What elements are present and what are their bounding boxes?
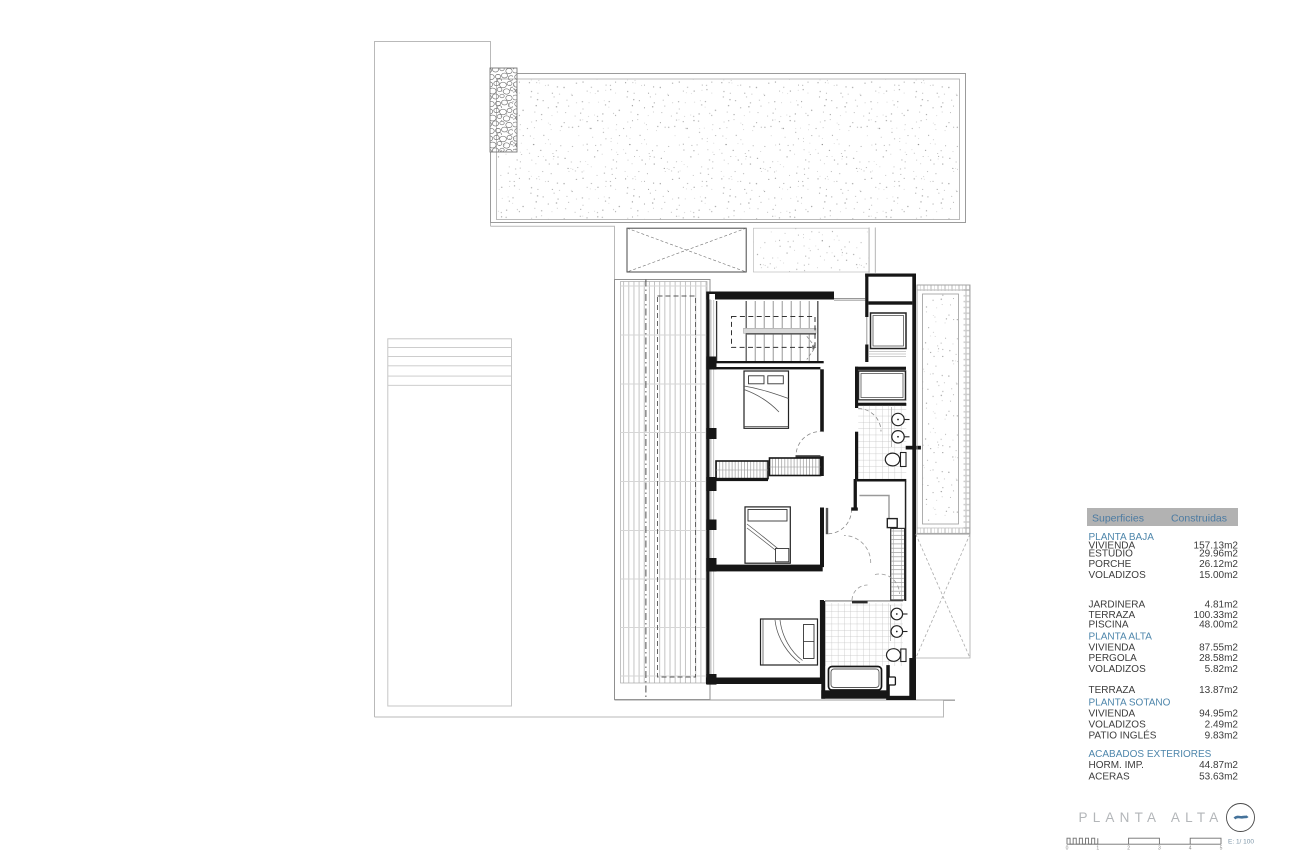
svg-text:26.12m2: 26.12m2 bbox=[1199, 559, 1238, 570]
svg-text:ACERAS: ACERAS bbox=[1089, 772, 1130, 783]
svg-text:87.55m2: 87.55m2 bbox=[1199, 643, 1238, 654]
svg-text:0: 0 bbox=[1066, 846, 1069, 850]
svg-text:VIVIENDA: VIVIENDA bbox=[1089, 709, 1136, 720]
svg-text:44.87m2: 44.87m2 bbox=[1199, 760, 1238, 771]
svg-text:PATIO INGLÉS: PATIO INGLÉS bbox=[1089, 729, 1157, 742]
svg-text:5: 5 bbox=[1220, 846, 1223, 850]
svg-text:ACABADOS EXTERIORES: ACABADOS EXTERIORES bbox=[1089, 749, 1212, 760]
svg-text:Superficies: Superficies bbox=[1092, 513, 1144, 525]
svg-text:VIVIENDA: VIVIENDA bbox=[1089, 643, 1136, 654]
svg-text:9.83m2: 9.83m2 bbox=[1205, 731, 1239, 742]
svg-text:13.87m2: 13.87m2 bbox=[1199, 685, 1238, 696]
svg-text:1: 1 bbox=[1096, 846, 1099, 850]
svg-text:TERRAZA: TERRAZA bbox=[1089, 685, 1136, 696]
svg-text:JARDINERA: JARDINERA bbox=[1089, 600, 1146, 611]
svg-text:3: 3 bbox=[1158, 846, 1161, 850]
svg-text:VOLADIZOS: VOLADIZOS bbox=[1089, 720, 1147, 731]
svg-text:2.49m2: 2.49m2 bbox=[1205, 720, 1239, 731]
svg-text:PLANTA SOTANO: PLANTA SOTANO bbox=[1089, 698, 1171, 709]
svg-text:5.82m2: 5.82m2 bbox=[1205, 664, 1239, 675]
svg-text:PERGOLA: PERGOLA bbox=[1089, 653, 1138, 664]
svg-text:PISCINA: PISCINA bbox=[1089, 620, 1129, 631]
svg-text:HORM. IMP.: HORM. IMP. bbox=[1089, 760, 1144, 771]
svg-text:4: 4 bbox=[1189, 846, 1192, 850]
svg-text:28.58m2: 28.58m2 bbox=[1199, 653, 1238, 664]
svg-text:E: 1/ 100: E: 1/ 100 bbox=[1228, 839, 1254, 846]
svg-text:4.81m2: 4.81m2 bbox=[1205, 600, 1239, 611]
svg-text:VOLADIZOS: VOLADIZOS bbox=[1089, 664, 1147, 675]
svg-text:PORCHE: PORCHE bbox=[1089, 559, 1132, 570]
svg-text:29.96m2: 29.96m2 bbox=[1199, 549, 1238, 560]
svg-text:PLANTA ALTA: PLANTA ALTA bbox=[1089, 632, 1153, 643]
svg-text:94.95m2: 94.95m2 bbox=[1199, 709, 1238, 720]
svg-text:53.63m2: 53.63m2 bbox=[1199, 772, 1238, 783]
svg-text:VOLADIZOS: VOLADIZOS bbox=[1089, 570, 1147, 581]
svg-text:2: 2 bbox=[1127, 846, 1130, 850]
svg-text:ESTUDIO: ESTUDIO bbox=[1089, 549, 1134, 560]
svg-text:48.00m2: 48.00m2 bbox=[1199, 620, 1238, 631]
svg-text:PLANTA ALTA: PLANTA ALTA bbox=[1079, 810, 1224, 825]
svg-text:15.00m2: 15.00m2 bbox=[1199, 570, 1238, 581]
svg-text:Construidas: Construidas bbox=[1171, 513, 1227, 525]
